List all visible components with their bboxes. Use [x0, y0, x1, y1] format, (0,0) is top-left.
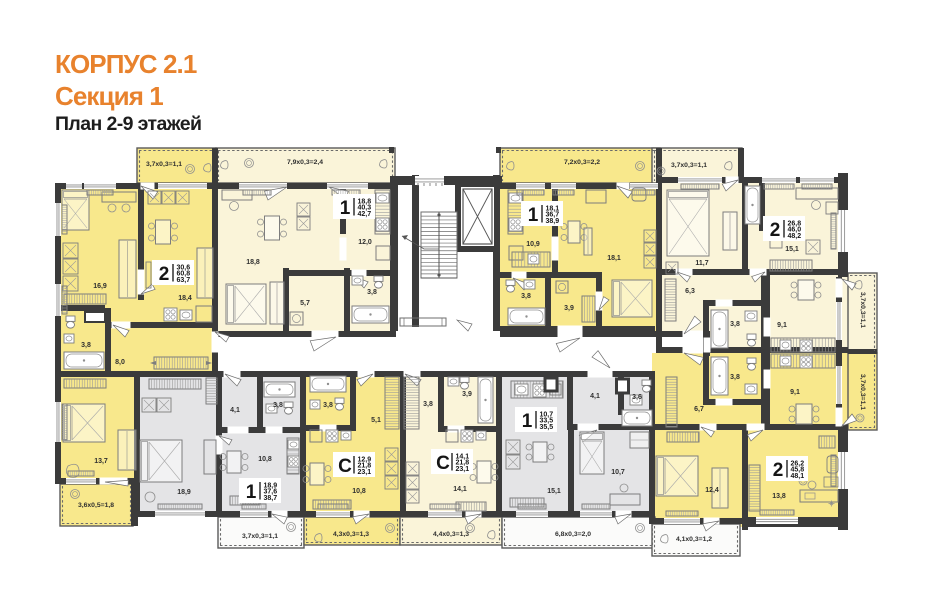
svg-text:6,8х0,3=2,0: 6,8х0,3=2,0 [555, 531, 591, 538]
svg-text:38,9: 38,9 [546, 218, 560, 225]
svg-text:11,7: 11,7 [695, 260, 708, 267]
svg-text:3,6х0,5=1,8: 3,6х0,5=1,8 [78, 502, 114, 509]
svg-text:4,1х0,3=1,2: 4,1х0,3=1,2 [676, 536, 712, 543]
svg-text:18,1: 18,1 [607, 255, 621, 262]
svg-text:15,1: 15,1 [547, 488, 561, 495]
svg-text:КОРПУС 2.1: КОРПУС 2.1 [55, 49, 197, 79]
svg-text:3,7х0,3=1,1: 3,7х0,3=1,1 [859, 292, 866, 328]
svg-text:4,1: 4,1 [590, 393, 600, 400]
svg-text:1: 1 [522, 411, 533, 432]
svg-text:48,2: 48,2 [788, 233, 802, 240]
svg-text:4,3х0,3=1,3: 4,3х0,3=1,3 [333, 531, 369, 538]
svg-text:35,5: 35,5 [540, 424, 554, 431]
svg-text:38,7: 38,7 [264, 495, 278, 502]
svg-text:3,8: 3,8 [273, 402, 283, 409]
svg-text:3,7х0,3=1,1: 3,7х0,3=1,1 [242, 533, 278, 540]
svg-text:10,9: 10,9 [526, 241, 540, 248]
svg-text:3,9: 3,9 [462, 391, 472, 398]
svg-text:3,8: 3,8 [81, 342, 91, 349]
svg-text:48,1: 48,1 [791, 473, 805, 480]
svg-text:18,9: 18,9 [177, 489, 191, 496]
svg-text:3,7х0,3=1,1: 3,7х0,3=1,1 [146, 161, 182, 168]
svg-text:10,7: 10,7 [611, 469, 625, 476]
svg-text:63,7: 63,7 [177, 277, 191, 284]
svg-text:2: 2 [773, 460, 784, 481]
svg-text:1: 1 [340, 198, 351, 219]
svg-text:16,9: 16,9 [93, 283, 107, 290]
svg-text:12,4: 12,4 [705, 487, 719, 494]
svg-text:План 2-9 этажей: План 2-9 этажей [55, 113, 201, 135]
svg-text:2: 2 [770, 220, 781, 241]
svg-text:3,6: 3,6 [632, 394, 642, 401]
svg-text:14,1: 14,1 [453, 486, 467, 493]
svg-text:3,8: 3,8 [323, 402, 333, 409]
svg-text:23,1: 23,1 [358, 469, 372, 476]
svg-text:7,9х0,3=2,4: 7,9х0,3=2,4 [287, 159, 323, 166]
svg-text:3,8: 3,8 [730, 321, 740, 328]
svg-text:8,0: 8,0 [115, 359, 125, 366]
svg-text:12,0: 12,0 [358, 239, 372, 246]
svg-text:3,8: 3,8 [521, 293, 531, 300]
svg-text:13,8: 13,8 [772, 493, 786, 500]
svg-text:С: С [338, 456, 352, 477]
svg-text:3,7х0,3=1,1: 3,7х0,3=1,1 [671, 162, 707, 169]
svg-text:3,8: 3,8 [367, 289, 377, 296]
svg-text:5,1: 5,1 [371, 417, 381, 424]
svg-text:9,1: 9,1 [777, 322, 787, 329]
svg-text:13,7: 13,7 [94, 458, 108, 465]
svg-text:1: 1 [528, 205, 539, 226]
svg-text:3,7х0,3=1,1: 3,7х0,3=1,1 [859, 374, 866, 410]
svg-text:4,4х0,3=1,3: 4,4х0,3=1,3 [433, 531, 469, 538]
svg-text:1: 1 [246, 482, 257, 503]
svg-text:3,9: 3,9 [564, 305, 574, 312]
svg-text:3,8: 3,8 [730, 374, 740, 381]
svg-text:15,1: 15,1 [785, 246, 799, 253]
svg-text:10,8: 10,8 [352, 488, 366, 495]
svg-text:9,1: 9,1 [790, 389, 800, 396]
svg-text:42,7: 42,7 [358, 211, 372, 218]
svg-text:6,7: 6,7 [694, 406, 704, 413]
svg-text:2: 2 [159, 264, 170, 285]
svg-text:4,1: 4,1 [230, 407, 240, 414]
svg-text:3,8: 3,8 [423, 401, 433, 408]
svg-text:Секция 1: Секция 1 [55, 81, 163, 111]
svg-text:18,8: 18,8 [246, 259, 260, 266]
svg-text:18,4: 18,4 [178, 295, 192, 302]
svg-text:6,3: 6,3 [685, 288, 695, 295]
svg-text:23,1: 23,1 [456, 466, 470, 473]
svg-text:7,2х0,3=2,2: 7,2х0,3=2,2 [564, 159, 600, 166]
svg-text:С: С [436, 453, 450, 474]
svg-text:10,8: 10,8 [258, 456, 272, 463]
svg-text:5,7: 5,7 [300, 300, 310, 307]
